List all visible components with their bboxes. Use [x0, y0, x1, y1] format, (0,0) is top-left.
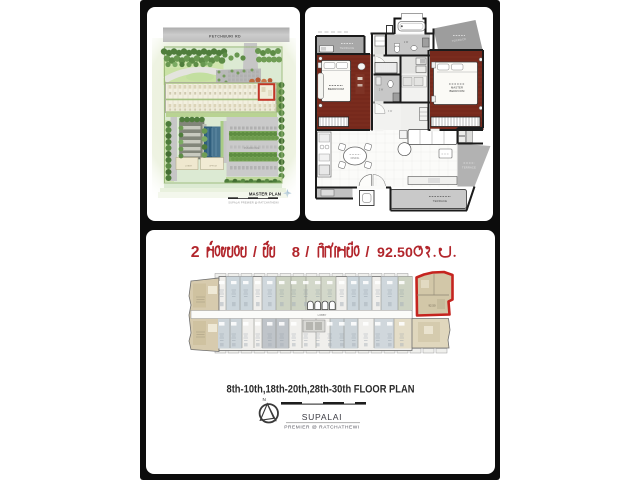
svg-text:/: /: [305, 245, 309, 261]
svg-text:/: /: [365, 245, 369, 261]
svg-text:PREMIER @ RATCHATHEWI: PREMIER @ RATCHATHEWI: [284, 425, 359, 431]
svg-text:92.50: 92.50: [377, 245, 413, 261]
svg-text:DINING: DINING: [351, 157, 360, 160]
svg-text:PARKING: PARKING: [244, 146, 260, 150]
svg-text:92.50: 92.50: [429, 304, 436, 308]
svg-text:TERRACE: TERRACE: [433, 199, 447, 203]
svg-text:TERRACE: TERRACE: [462, 166, 476, 170]
svg-text:MASTER: MASTER: [451, 86, 463, 90]
svg-text:LOBBY: LOBBY: [318, 313, 327, 317]
svg-text:2 W: 2 W: [404, 41, 409, 44]
svg-text:TERRACE: TERRACE: [340, 46, 355, 50]
svg-text:SUPALAI: SUPALAI: [302, 412, 343, 422]
svg-text:8: 8: [292, 245, 300, 261]
svg-text:2 W: 2 W: [379, 89, 384, 92]
svg-text:SUPALAI PREMIER @ RATCHATHEWI: SUPALAI PREMIER @ RATCHATHEWI: [228, 201, 279, 205]
svg-text:8th-10th,18th-20th,28th-30th F: 8th-10th,18th-20th,28th-30th FLOOR PLAN: [227, 384, 415, 396]
svg-text:3 W: 3 W: [388, 110, 393, 113]
svg-text:2: 2: [191, 244, 200, 261]
svg-text:PETCHBURI RD: PETCHBURI RD: [209, 34, 241, 38]
svg-text:BEDROOM: BEDROOM: [450, 89, 466, 93]
svg-text:OFFICE: OFFICE: [209, 166, 218, 168]
svg-text:N: N: [263, 397, 266, 402]
svg-text:MASTER PLAN: MASTER PLAN: [249, 191, 281, 196]
svg-text:LOBBY: LOBBY: [185, 166, 193, 168]
svg-text:/: /: [253, 245, 257, 261]
svg-text:BEDROOM: BEDROOM: [328, 87, 345, 91]
